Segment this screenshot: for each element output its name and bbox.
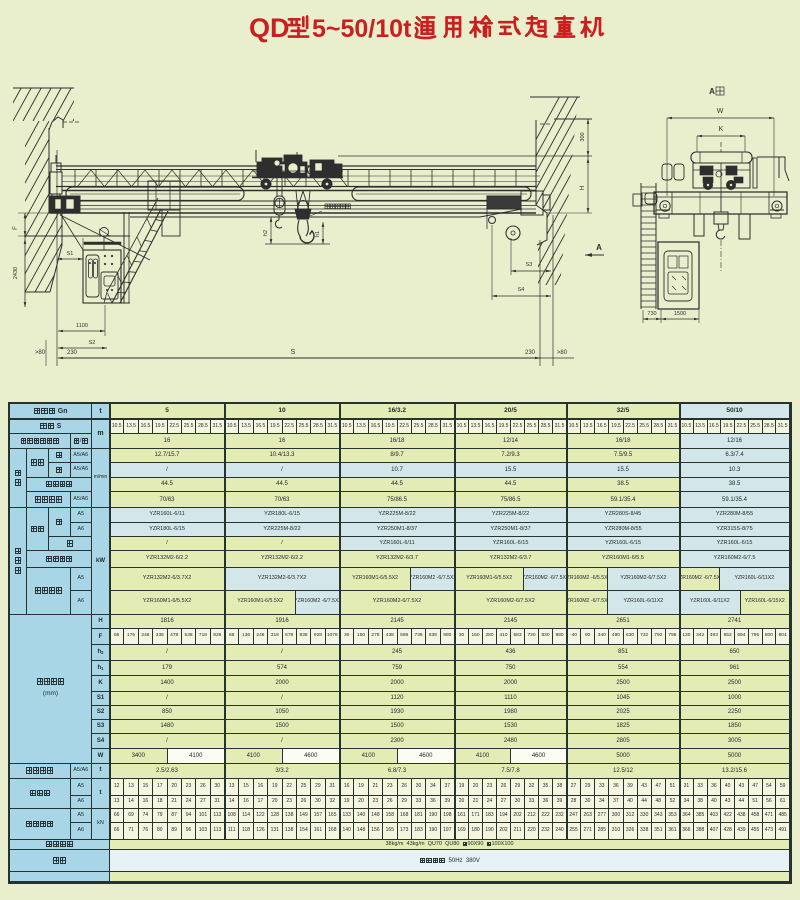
svg-text:F: F [13, 226, 19, 230]
svg-text:H: H [580, 186, 586, 190]
svg-text:1500: 1500 [674, 311, 686, 317]
svg-text:W: W [717, 108, 724, 115]
svg-text:230: 230 [525, 350, 536, 356]
svg-text:A: A [596, 243, 602, 252]
svg-text:S1: S1 [67, 251, 74, 257]
svg-text:>80: >80 [557, 350, 568, 356]
svg-text:S: S [291, 349, 296, 356]
svg-text:S4: S4 [518, 287, 525, 293]
svg-text:S3: S3 [526, 262, 533, 268]
svg-text:h2: h2 [263, 230, 269, 236]
svg-text:300: 300 [580, 132, 586, 141]
svg-text:>80: >80 [35, 350, 46, 356]
svg-text:2430: 2430 [13, 267, 19, 279]
svg-text:S2: S2 [89, 340, 96, 346]
svg-text:K: K [719, 126, 724, 133]
svg-text:h1: h1 [315, 231, 321, 237]
svg-text:730: 730 [647, 311, 656, 317]
svg-text:1100: 1100 [76, 323, 88, 329]
svg-text:230: 230 [67, 350, 78, 356]
svg-text:A: A [709, 87, 715, 96]
